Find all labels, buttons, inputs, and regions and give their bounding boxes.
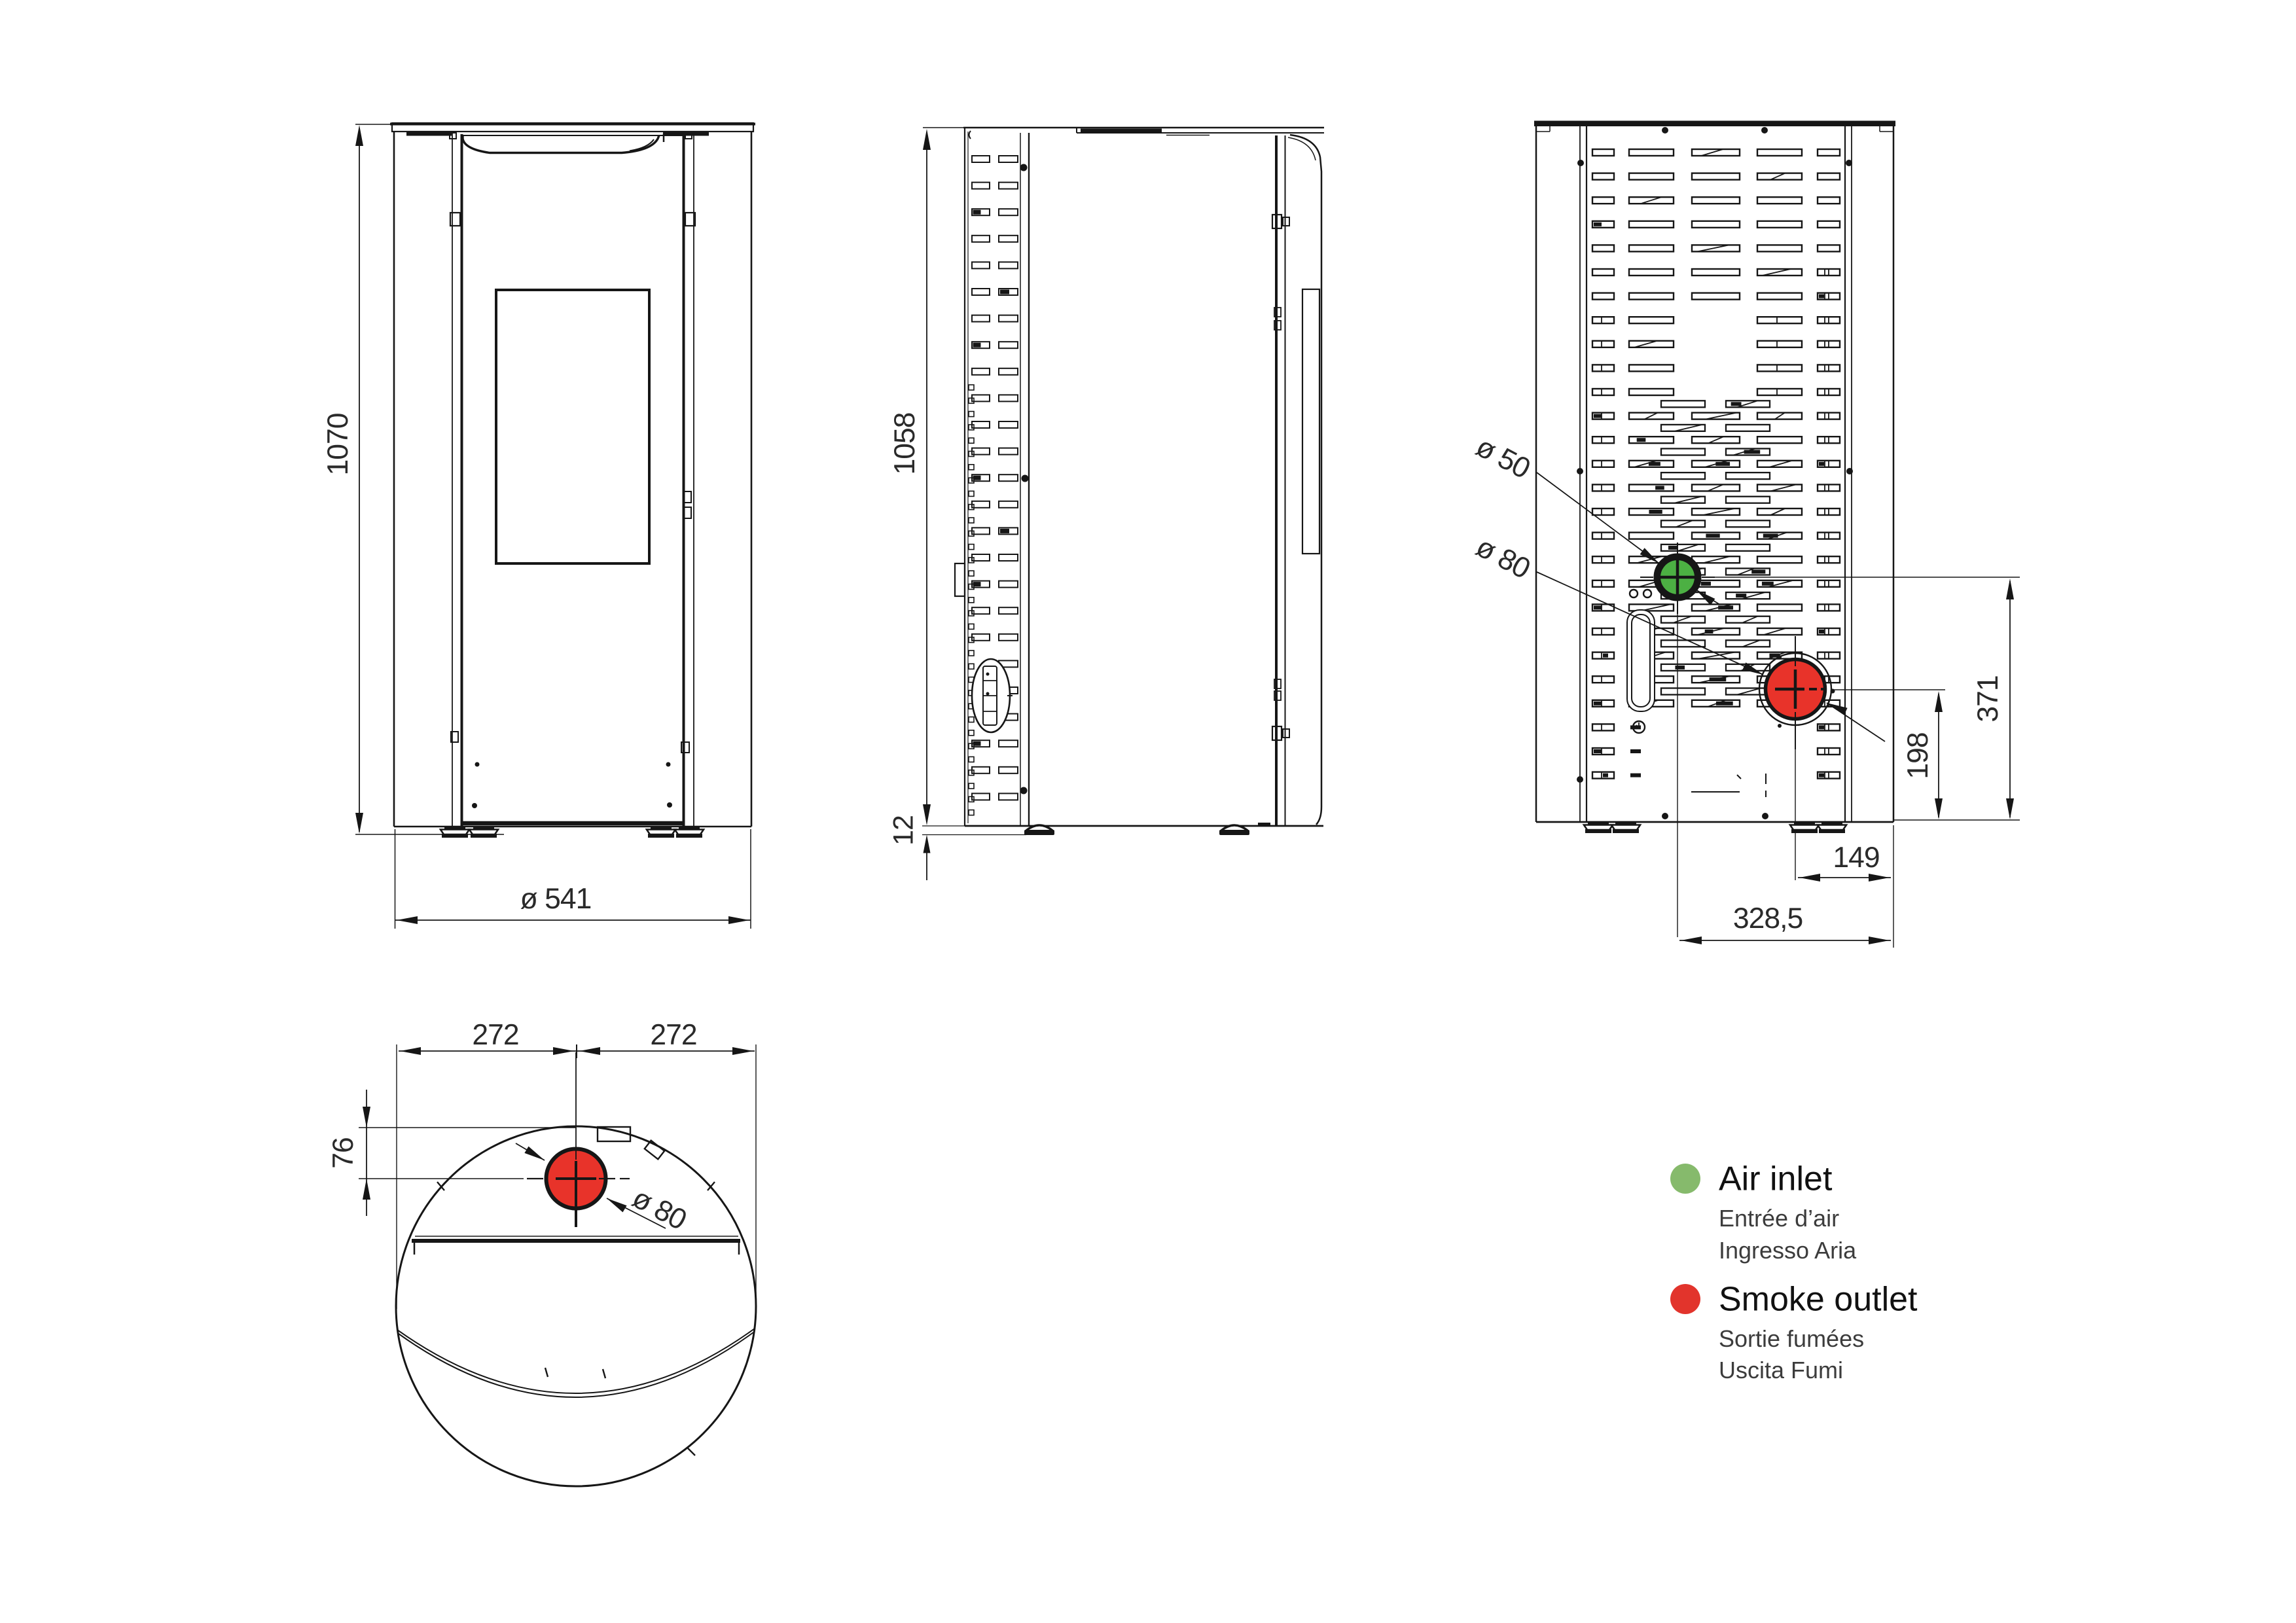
svg-text:1070: 1070: [322, 413, 354, 475]
svg-text:Air inlet: Air inlet: [1719, 1160, 1833, 1198]
svg-text:328,5: 328,5: [1733, 902, 1803, 935]
svg-text:198: 198: [1902, 732, 1934, 779]
svg-text:76: 76: [327, 1137, 359, 1169]
svg-text:ø 541: ø 541: [520, 883, 592, 915]
svg-text:371: 371: [1972, 675, 2004, 722]
svg-text:272: 272: [650, 1019, 696, 1051]
svg-text:1058: 1058: [889, 413, 921, 475]
svg-text:12: 12: [888, 815, 919, 846]
svg-text:Smoke outlet: Smoke outlet: [1719, 1281, 1918, 1319]
svg-text:272: 272: [472, 1019, 518, 1051]
svg-text:Uscita Fumi: Uscita Fumi: [1719, 1357, 1843, 1383]
svg-text:Entrée d’air: Entrée d’air: [1719, 1205, 1839, 1232]
svg-text:Ingresso Aria: Ingresso Aria: [1719, 1237, 1857, 1264]
svg-text:Sortie fumées: Sortie fumées: [1719, 1325, 1864, 1352]
svg-text:149: 149: [1833, 842, 1879, 874]
